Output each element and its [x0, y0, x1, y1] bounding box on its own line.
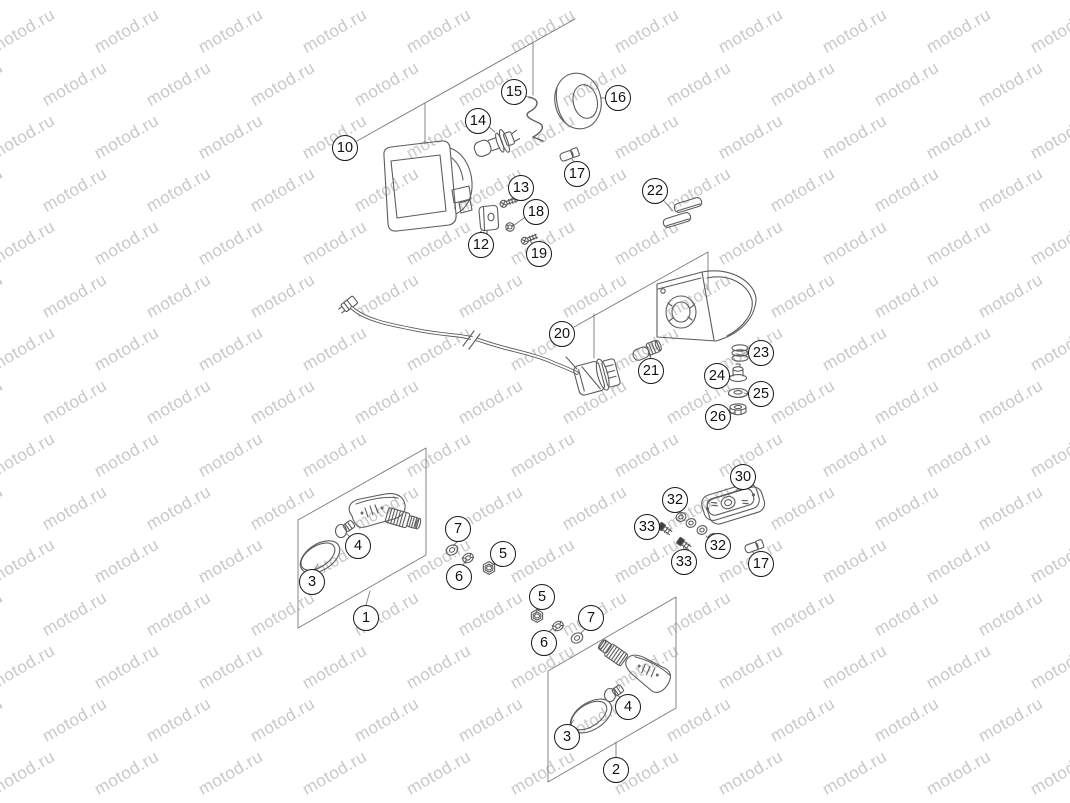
callout-17: 17: [748, 551, 774, 577]
callout-32: 32: [705, 533, 731, 559]
callout-33: 33: [671, 549, 697, 575]
callout-6: 6: [446, 564, 472, 590]
callout-18: 18: [523, 199, 549, 225]
callout-14: 14: [465, 108, 491, 134]
callout-16: 16: [605, 85, 631, 111]
callout-4: 4: [615, 694, 641, 720]
callout-21: 21: [638, 358, 664, 384]
callout-25: 25: [748, 381, 774, 407]
callout-15: 15: [501, 79, 527, 105]
callout-3: 3: [554, 724, 580, 750]
callout-23: 23: [748, 340, 774, 366]
callout-2: 2: [603, 757, 629, 783]
callout-10: 10: [332, 135, 358, 161]
callout-24: 24: [704, 363, 730, 389]
callout-26: 26: [705, 404, 731, 430]
callout-4: 4: [345, 533, 371, 559]
callout-layer: 1014151617131812192220212324252630323332…: [0, 0, 1070, 803]
callout-13: 13: [508, 175, 534, 201]
callout-1: 1: [353, 605, 379, 631]
callout-5: 5: [490, 541, 516, 567]
callout-33: 33: [634, 514, 660, 540]
callout-12: 12: [468, 232, 494, 258]
callout-7: 7: [578, 605, 604, 631]
callout-6: 6: [531, 630, 557, 656]
callout-3: 3: [299, 569, 325, 595]
callout-7: 7: [445, 516, 471, 542]
callout-32: 32: [662, 487, 688, 513]
callout-5: 5: [529, 584, 555, 610]
callout-30: 30: [730, 464, 756, 490]
callout-20: 20: [549, 321, 575, 347]
parts-diagram-page: motod.rumotod.rumotod.rumotod.rumotod.ru…: [0, 0, 1070, 803]
callout-22: 22: [642, 178, 668, 204]
callout-19: 19: [526, 241, 552, 267]
callout-17: 17: [564, 161, 590, 187]
